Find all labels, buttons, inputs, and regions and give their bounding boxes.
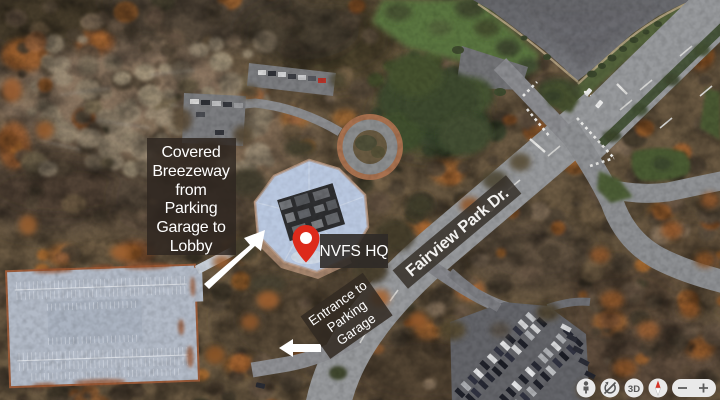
svg-text:Lobby: Lobby <box>170 238 213 255</box>
svg-text:3D: 3D <box>628 384 640 395</box>
svg-text:Breezeway: Breezeway <box>152 163 230 180</box>
svg-text:NVFS HQ: NVFS HQ <box>320 243 389 260</box>
svg-text:Garage to: Garage to <box>156 219 226 236</box>
svg-text:from: from <box>175 182 206 199</box>
svg-text:Covered: Covered <box>161 144 220 161</box>
svg-text:Parking: Parking <box>165 200 218 217</box>
